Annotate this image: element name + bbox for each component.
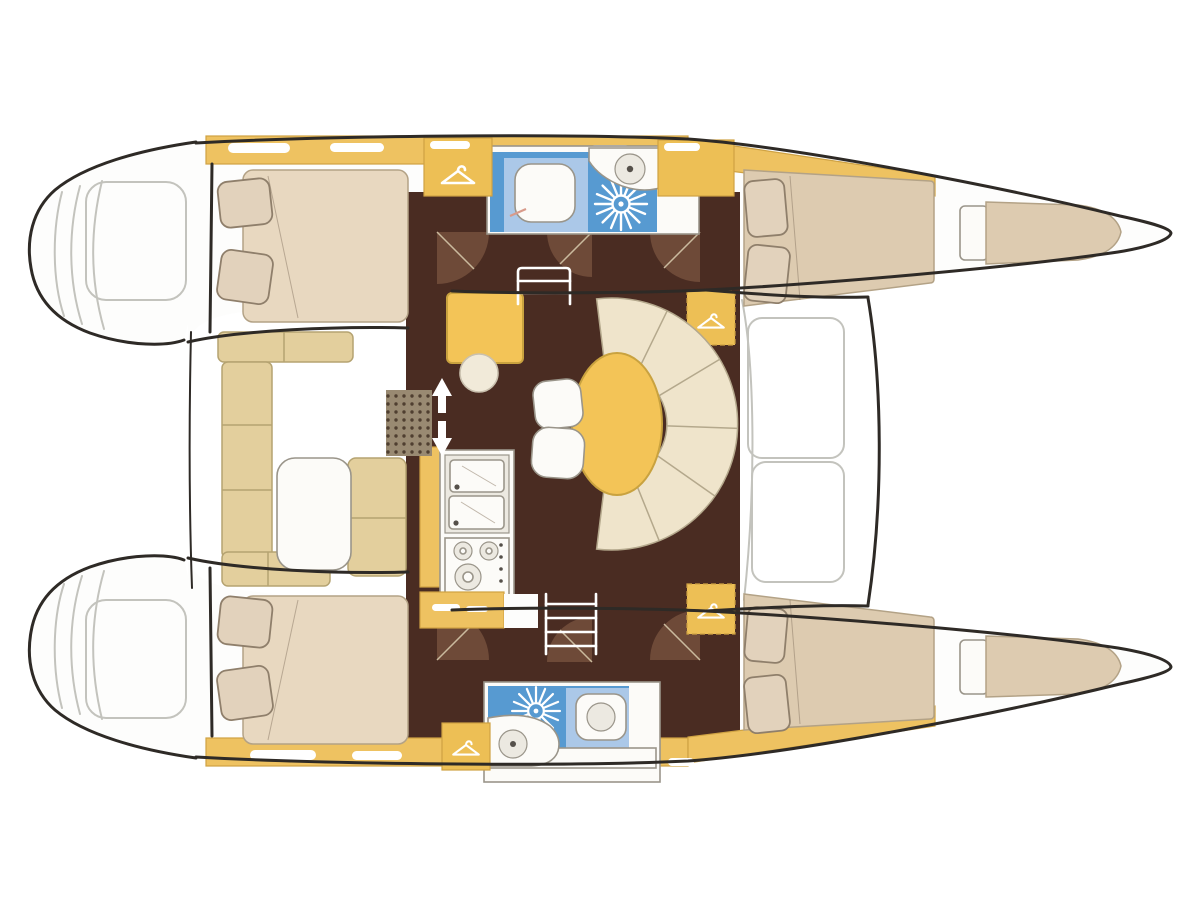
stern-platform-bottom — [29, 556, 196, 758]
cockpit-bench — [218, 332, 353, 362]
foredeck-hatch — [752, 462, 844, 582]
berth-headboard — [960, 640, 988, 694]
pillow — [216, 249, 274, 306]
pillow — [743, 674, 791, 734]
nav-stool — [460, 354, 498, 392]
berth-headboard — [960, 206, 988, 260]
pillow — [744, 178, 789, 237]
cockpit — [190, 332, 432, 588]
saloon-stool — [532, 378, 585, 431]
upper-cabinet — [658, 140, 734, 196]
pillow — [216, 665, 274, 722]
cockpit-bench — [348, 458, 406, 576]
catamaran-floor-plan — [0, 0, 1200, 900]
lower-aft-cabin — [216, 595, 408, 744]
nav-desk — [447, 293, 523, 363]
upper-aft-cabin — [216, 170, 408, 322]
cockpit-aft-wall — [190, 332, 192, 588]
saloon-stool — [530, 426, 585, 480]
floor-plan-canvas — [0, 0, 1200, 900]
foredeck-trampoline — [742, 298, 879, 605]
deck-grate — [386, 390, 432, 456]
toilet — [515, 164, 575, 222]
wardrobe-upper-aft — [424, 138, 492, 196]
cockpit-bench — [222, 362, 272, 558]
lower-bathroom — [484, 682, 660, 782]
cockpit-table — [277, 458, 351, 570]
stern-platform-top — [29, 142, 196, 344]
pillow — [217, 595, 274, 648]
pillow — [217, 177, 274, 228]
foredeck-hatch — [748, 318, 844, 458]
trampoline-edge — [868, 298, 879, 605]
saloon-oval-table — [572, 353, 662, 495]
